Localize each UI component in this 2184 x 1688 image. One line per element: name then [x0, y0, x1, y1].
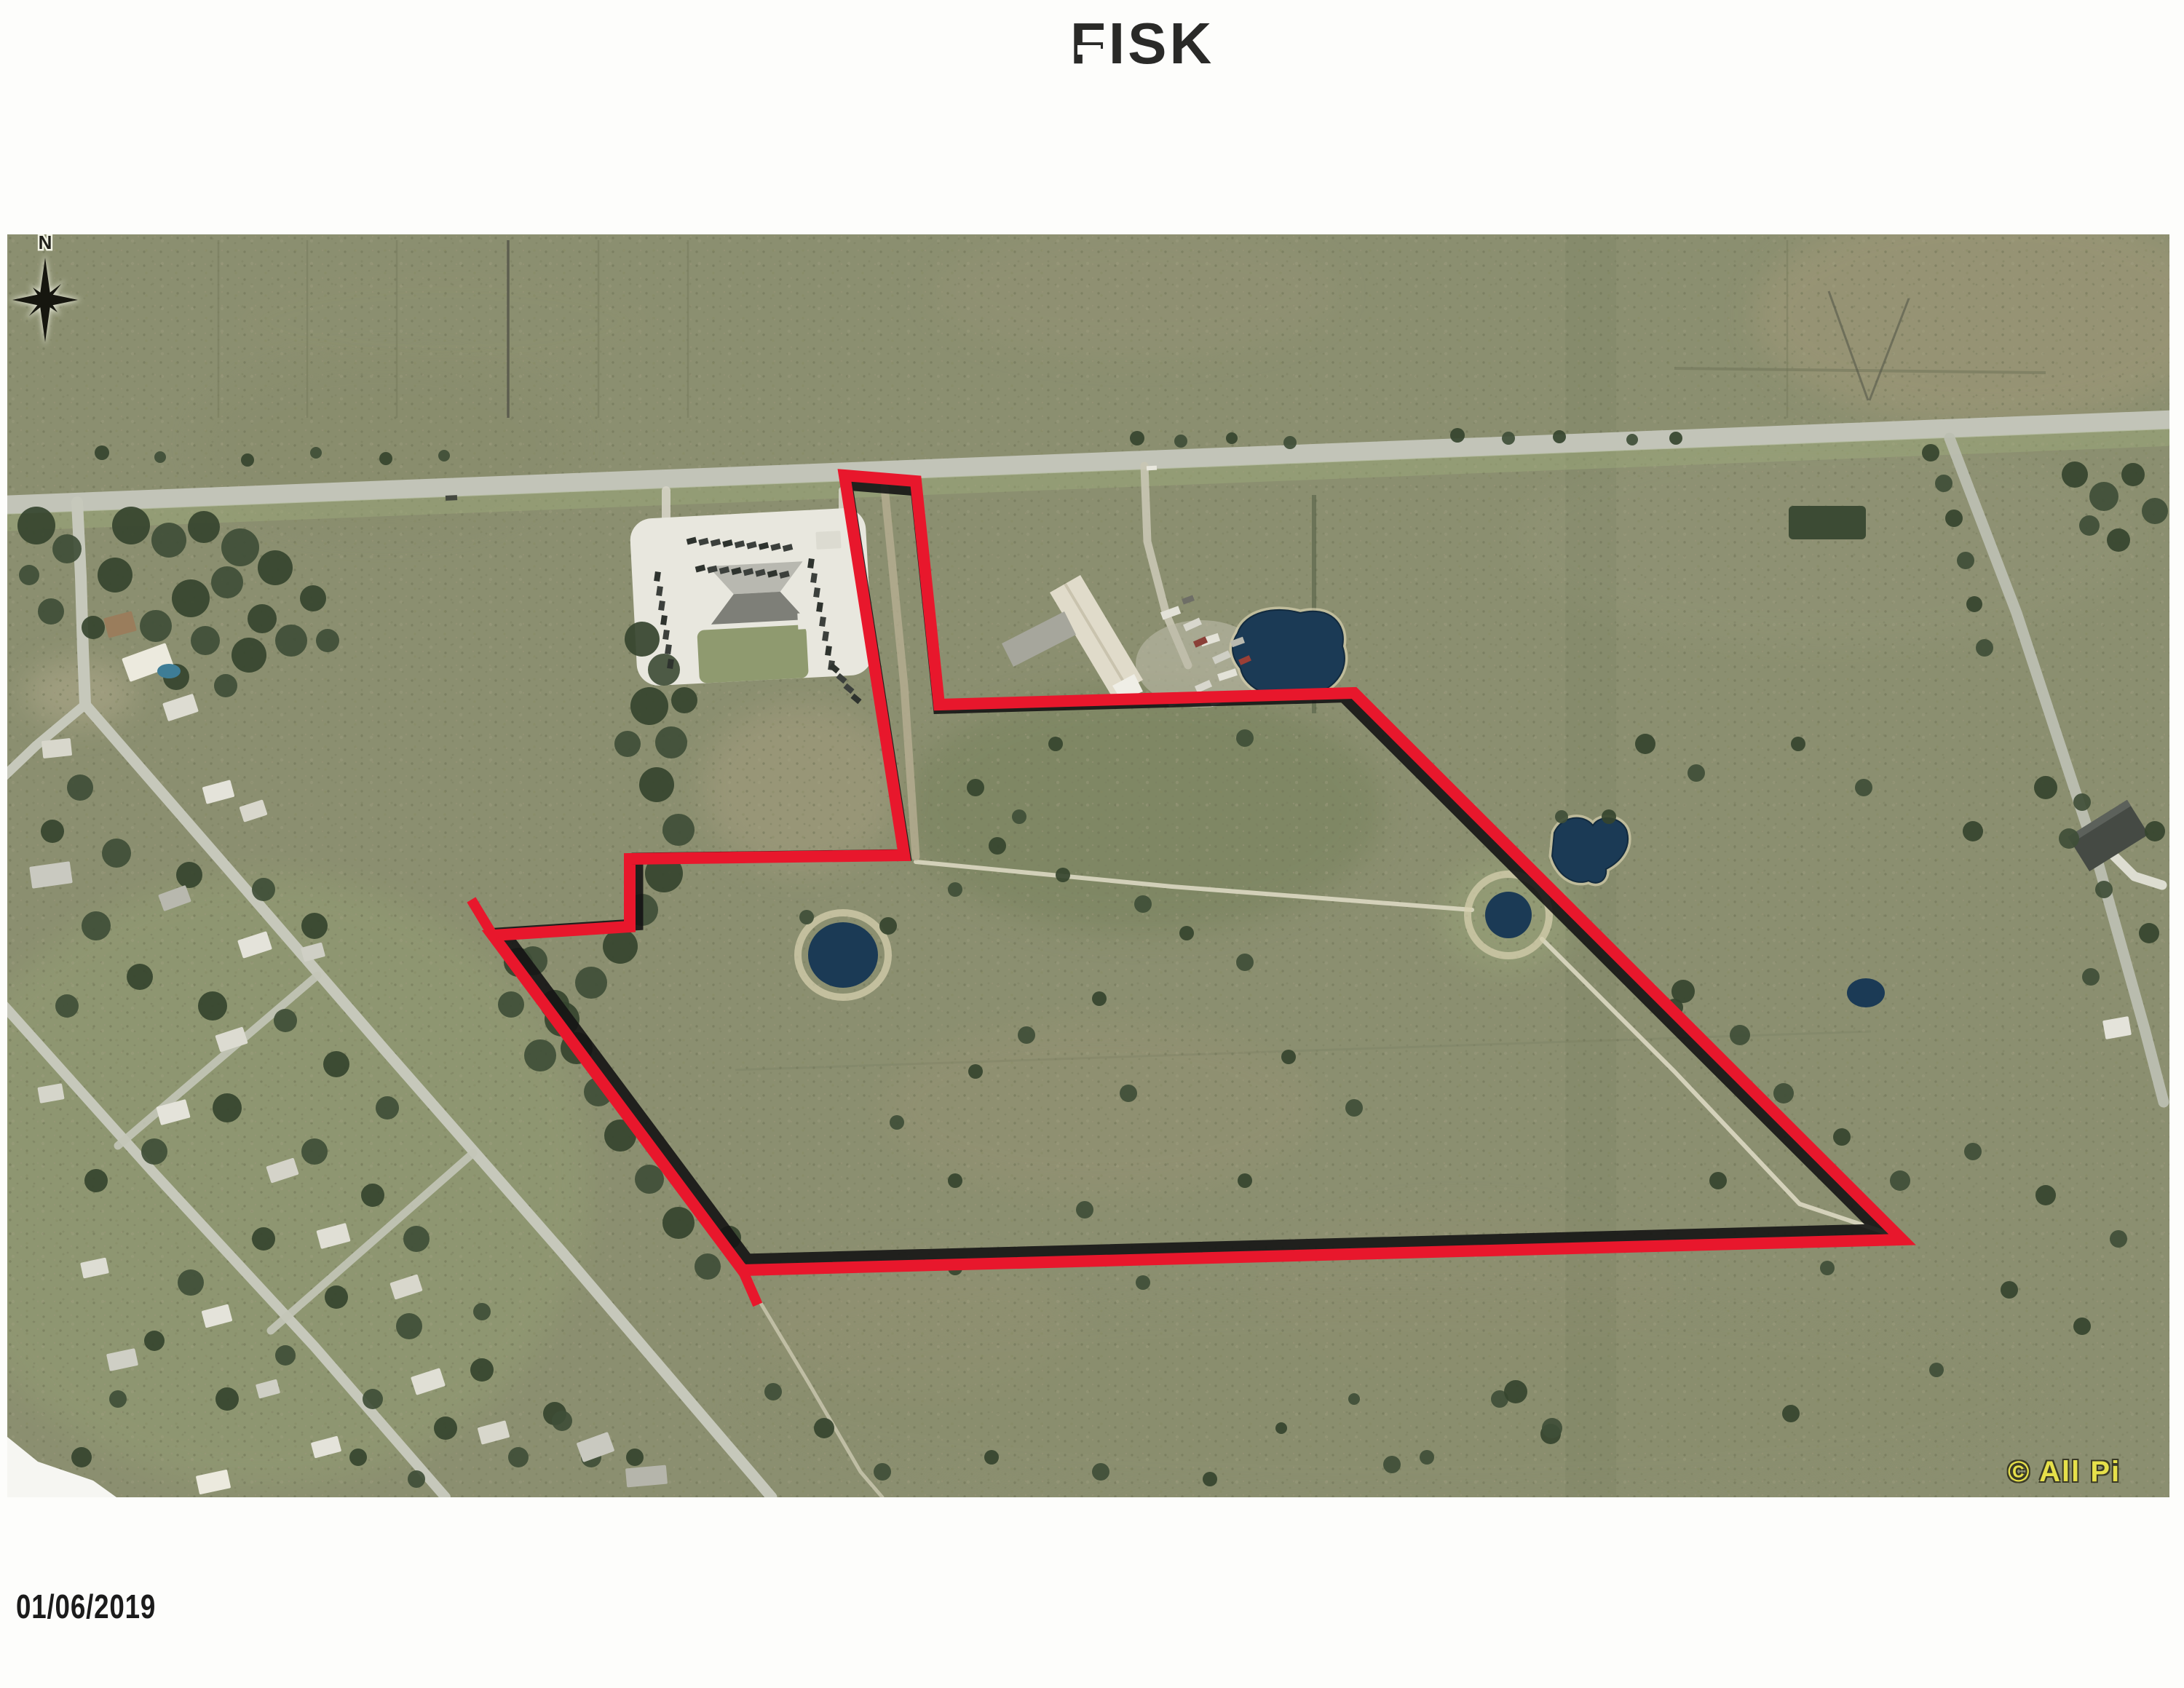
tree-blob — [258, 550, 293, 585]
tree-blob — [1635, 734, 1655, 754]
tree-blob — [1283, 436, 1297, 449]
tree-blob — [498, 991, 524, 1018]
tree-blob — [967, 779, 984, 796]
tree-blob — [434, 1416, 457, 1440]
tree-blob — [2034, 776, 2057, 799]
tree-blob — [1018, 1026, 1035, 1044]
tree-blob — [879, 917, 897, 935]
tree-blob — [41, 820, 64, 843]
tree-blob — [2073, 793, 2091, 811]
tree-blob — [301, 1138, 328, 1165]
tree-blob — [1782, 1405, 1800, 1422]
tree-blob — [310, 447, 322, 459]
tree-blob — [144, 1331, 165, 1351]
tree-blob — [614, 731, 641, 757]
tree-blob — [2095, 881, 2113, 898]
tree-blob — [625, 622, 660, 657]
tree-blob — [764, 1383, 782, 1400]
tree-blob — [1935, 475, 1952, 492]
tree-blob — [524, 1039, 556, 1071]
tree-blob — [1236, 729, 1254, 747]
tree-blob — [52, 534, 82, 563]
tree-blob — [603, 929, 638, 964]
tree-blob — [82, 616, 105, 639]
tree-blob — [473, 1303, 491, 1320]
tree-blob — [172, 579, 210, 617]
tree-blob — [2059, 828, 2079, 849]
tree-blob — [178, 1269, 204, 1296]
tree-blob — [1281, 1050, 1296, 1064]
tree-blob — [2121, 463, 2145, 486]
tree-blob — [1976, 639, 1993, 657]
pond — [1485, 892, 1532, 938]
tree-blob — [814, 1418, 834, 1438]
tree-blob — [1134, 895, 1152, 913]
tree-blob — [1957, 552, 1974, 569]
tree-blob — [140, 610, 172, 642]
tree-blob — [127, 964, 153, 990]
aerial-photo-svg: N — [7, 234, 2169, 1497]
tree-blob — [2082, 968, 2100, 986]
house-roof — [625, 1465, 668, 1488]
tree-blob — [1555, 810, 1568, 823]
tree-blob — [1504, 1380, 1527, 1403]
tree-blob — [1012, 809, 1026, 824]
tree-blob — [403, 1226, 430, 1252]
tree-blob — [1542, 1418, 1562, 1438]
tree-blob — [84, 1169, 108, 1192]
road-branch-road — [77, 502, 85, 705]
tree-blob — [1833, 1128, 1851, 1146]
tree-blob — [2139, 923, 2159, 943]
tree-blob — [438, 450, 450, 461]
tree-blob — [662, 1207, 695, 1239]
tree-blob — [1056, 868, 1070, 882]
tree-blob — [1966, 596, 1982, 612]
scan-dropout-artifact — [1077, 45, 1101, 55]
tree-blob — [17, 507, 55, 544]
truck-trailer — [446, 495, 457, 501]
copyright-watermark: © All Pi — [2008, 1456, 2121, 1489]
tree-blob — [300, 585, 326, 611]
tree-blob — [626, 1449, 644, 1466]
tree-blob — [211, 566, 243, 598]
tree-blob — [323, 1051, 349, 1077]
tree-blob — [252, 1227, 275, 1251]
tree-blob — [890, 1115, 904, 1130]
tree-blob — [655, 726, 687, 758]
tree-blob — [1820, 1261, 1835, 1275]
tree-blob — [639, 767, 674, 802]
tree-blob — [552, 1411, 572, 1431]
tree-blob — [275, 625, 307, 657]
tree-blob — [2079, 515, 2100, 536]
tree-blob — [984, 1450, 999, 1465]
tree-blob — [55, 994, 79, 1018]
tree-blob — [363, 1389, 383, 1409]
tree-blob — [82, 911, 111, 940]
tree-blob — [1890, 1170, 1910, 1191]
tree-blob — [154, 451, 166, 463]
church-porch — [797, 612, 820, 630]
tree-blob — [19, 565, 39, 585]
compass-n-label: N — [39, 234, 52, 253]
tree-blob — [1226, 432, 1238, 444]
tree-blob — [1174, 435, 1187, 448]
church-courtyard — [697, 625, 809, 683]
pond — [1233, 610, 1345, 697]
tree-blob — [1345, 1099, 1363, 1117]
tree-blob — [214, 674, 237, 697]
tree-blob — [1945, 510, 1963, 527]
page-title: FISK — [1070, 15, 1214, 73]
tree-blob — [989, 837, 1006, 855]
pond — [808, 922, 878, 988]
tree-blob — [2062, 461, 2088, 488]
tree-grove — [1789, 506, 1866, 539]
tree-blob — [67, 774, 93, 801]
tree-blob — [241, 453, 254, 467]
tree-blob — [695, 1253, 721, 1280]
tree-blob — [1136, 1275, 1150, 1290]
tree-blob — [1626, 434, 1638, 445]
tree-blob — [671, 687, 697, 713]
tree-blob — [376, 1096, 399, 1120]
tree-blob — [213, 1093, 242, 1122]
tree-blob — [648, 654, 680, 686]
tree-blob — [1502, 432, 1515, 445]
aerial-map: N © All Pi — [7, 234, 2169, 1497]
scanned-map-page: FISK — [0, 0, 2184, 1688]
tree-blob — [1048, 737, 1063, 751]
tree-blob — [1553, 430, 1566, 443]
tree-blob — [2001, 1281, 2018, 1299]
tree-blob — [662, 814, 695, 846]
date-label: 01/06/2019 — [16, 1587, 156, 1626]
tree-blob — [1236, 954, 1254, 971]
tree-blob — [379, 452, 392, 465]
pond — [1847, 978, 1885, 1007]
tree-blob — [2073, 1317, 2091, 1335]
tree-blob — [232, 638, 266, 673]
tree-blob — [1092, 991, 1107, 1006]
tree-blob — [325, 1285, 348, 1309]
tree-blob — [1773, 1083, 1794, 1103]
tree-blob — [1963, 821, 1983, 841]
tree-blob — [1092, 1463, 1109, 1481]
tree-blob — [635, 1165, 664, 1194]
tree-blob — [575, 967, 607, 999]
tree-blob — [948, 882, 962, 897]
tree-blob — [1348, 1393, 1360, 1405]
tree-blob — [316, 629, 339, 652]
tree-blob — [1730, 1025, 1750, 1045]
tree-blob — [1669, 432, 1682, 445]
tree-blob — [2107, 528, 2130, 552]
tree-blob — [2145, 821, 2165, 841]
tree-blob — [361, 1184, 384, 1207]
tree-blob — [1450, 428, 1465, 443]
tree-blob — [221, 528, 259, 566]
tree-blob — [2089, 482, 2118, 511]
tree-blob — [1922, 444, 1939, 461]
tree-blob — [1602, 809, 1616, 824]
tree-blob — [1383, 1456, 1401, 1473]
tree-blob — [948, 1173, 962, 1188]
tree-blob — [112, 507, 150, 544]
swimming-pool — [157, 664, 181, 678]
tree-blob — [71, 1447, 92, 1467]
tree-blob — [176, 862, 202, 888]
tree-blob — [1076, 1201, 1093, 1219]
tree-blob — [95, 445, 109, 460]
tree-blob — [1275, 1422, 1287, 1434]
tree-blob — [396, 1313, 422, 1339]
tree-blob — [1120, 1085, 1137, 1102]
tree-blob — [1179, 926, 1194, 940]
tree-blob — [98, 558, 132, 593]
tree-blob — [252, 878, 275, 901]
tree-blob — [1203, 1472, 1217, 1486]
tree-blob — [408, 1470, 425, 1488]
tree-blob — [1964, 1143, 1982, 1160]
tree-blob — [508, 1447, 529, 1467]
house-roof — [41, 738, 72, 758]
tree-blob — [191, 626, 220, 655]
tree-blob — [1130, 431, 1144, 445]
tree-blob — [188, 511, 220, 543]
tree-blob — [1420, 1450, 1434, 1465]
tree-blob — [198, 991, 227, 1021]
tree-blob — [874, 1463, 891, 1481]
tree-blob — [799, 910, 814, 924]
tree-blob — [141, 1138, 167, 1165]
tree-blob — [301, 913, 328, 939]
tree-blob — [968, 1064, 983, 1079]
tree-blob — [2110, 1230, 2127, 1248]
tree-blob — [102, 839, 131, 868]
tree-blob — [38, 598, 64, 625]
tree-blob — [1238, 1173, 1252, 1188]
tree-blob — [1929, 1363, 1944, 1377]
truck-trailer — [1147, 466, 1157, 471]
tree-blob — [2142, 498, 2168, 524]
tree-blob — [630, 687, 668, 725]
tree-blob — [1688, 764, 1705, 782]
house-roof — [815, 531, 841, 550]
tree-blob — [274, 1009, 297, 1032]
tree-blob — [1791, 737, 1805, 751]
tree-blob — [109, 1390, 127, 1408]
tree-blob — [1709, 1172, 1727, 1189]
tree-blob — [215, 1387, 239, 1411]
tree-blob — [349, 1449, 367, 1466]
tree-blob — [1855, 779, 1872, 796]
tree-blob — [275, 1345, 296, 1366]
tree-blob — [248, 604, 277, 633]
tree-blob — [151, 523, 186, 558]
tree-blob — [2035, 1185, 2056, 1205]
tree-blob — [470, 1358, 494, 1382]
